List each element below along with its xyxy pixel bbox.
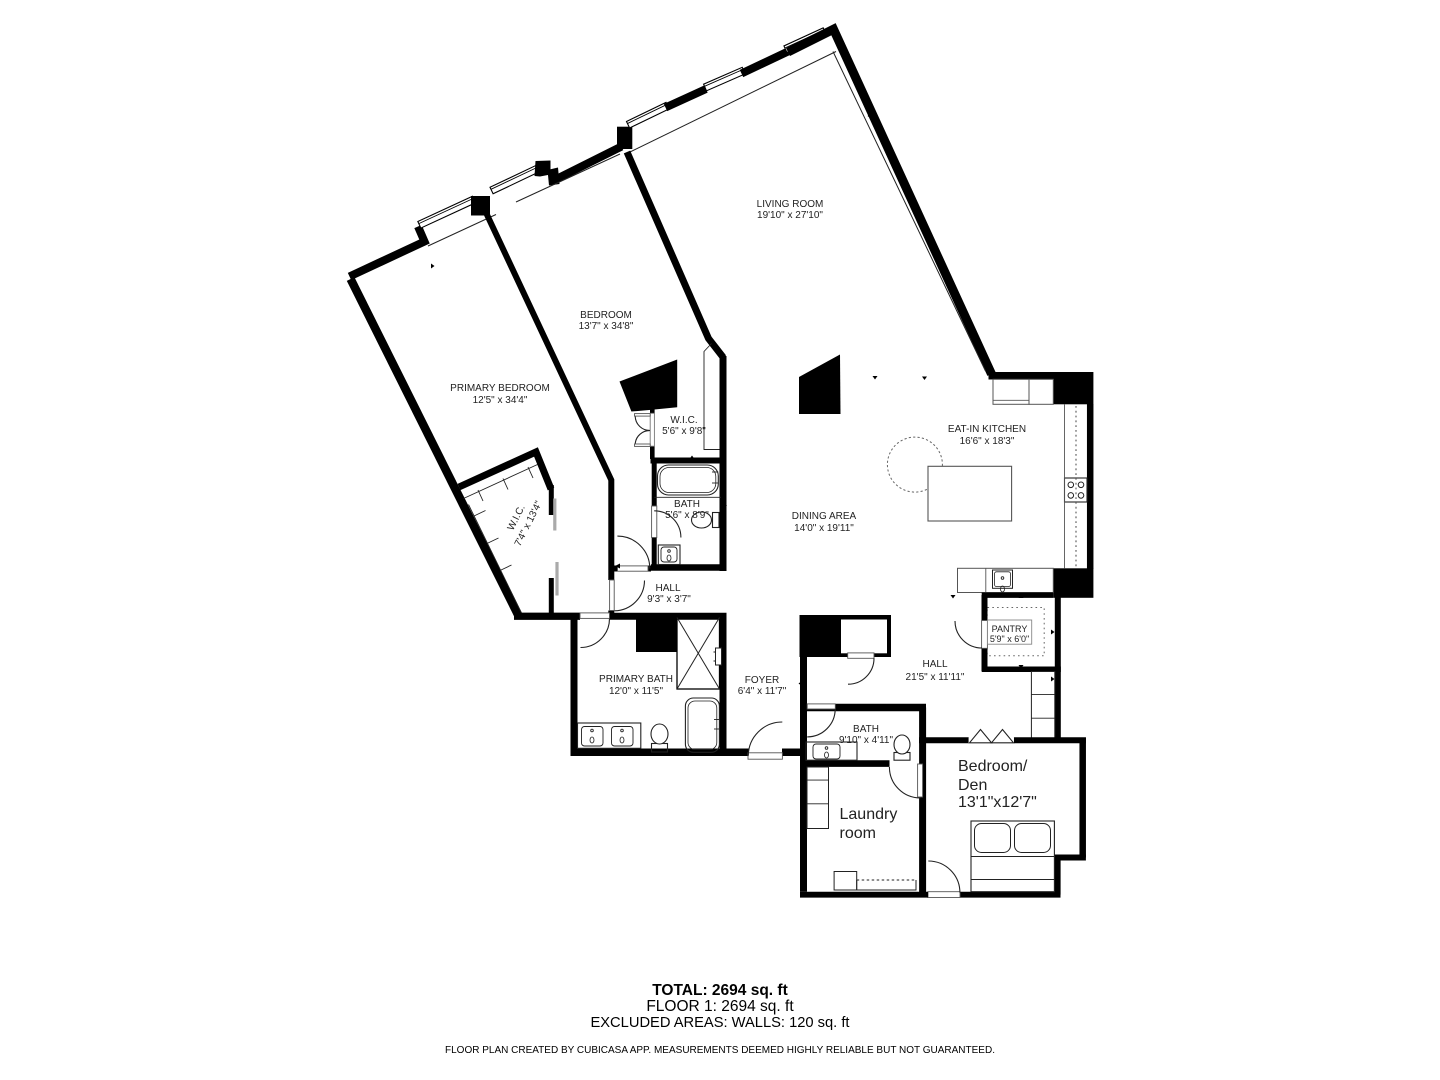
svg-text:LIVING ROOM: LIVING ROOM: [757, 199, 824, 210]
svg-text:HALL: HALL: [922, 659, 947, 670]
svg-text:FLOOR 1: 2694 sq. ft: FLOOR 1: 2694 sq. ft: [646, 998, 794, 1015]
svg-text:16'6" x 18'3": 16'6" x 18'3": [960, 436, 1015, 447]
svg-text:19'10" x 27'10": 19'10" x 27'10": [757, 210, 823, 221]
svg-text:9'10" x 4'11": 9'10" x 4'11": [839, 735, 894, 746]
svg-text:5'6" x 9'8": 5'6" x 9'8": [662, 426, 706, 437]
svg-text:12'5" x 34'4": 12'5" x 34'4": [473, 395, 528, 406]
svg-text:12'0" x 11'5": 12'0" x 11'5": [609, 686, 664, 697]
svg-text:EXCLUDED AREAS: WALLS: 120 sq.: EXCLUDED AREAS: WALLS: 120 sq. ft: [590, 1015, 849, 1031]
svg-text:PRIMARY BEDROOM: PRIMARY BEDROOM: [450, 383, 550, 394]
svg-text:BATH: BATH: [674, 499, 700, 510]
svg-text:PANTRY: PANTRY: [992, 624, 1028, 634]
svg-text:14'0" x 19'11": 14'0" x 19'11": [794, 523, 854, 534]
svg-text:HALL: HALL: [655, 583, 680, 594]
svg-text:DINING AREA: DINING AREA: [792, 511, 857, 522]
svg-text:PRIMARY BATH: PRIMARY BATH: [599, 674, 673, 685]
svg-text:FLOOR PLAN CREATED BY CUBICASA: FLOOR PLAN CREATED BY CUBICASA APP. MEAS…: [445, 1045, 995, 1056]
svg-text:9'3" x 3'7": 9'3" x 3'7": [647, 594, 691, 605]
svg-text:EAT-IN KITCHEN: EAT-IN KITCHEN: [948, 424, 1026, 435]
svg-text:21'5" x 11'11": 21'5" x 11'11": [906, 672, 965, 683]
svg-text:FOYER: FOYER: [745, 675, 779, 686]
svg-text:BEDROOM: BEDROOM: [580, 310, 632, 321]
svg-text:13'1"x12'7": 13'1"x12'7": [958, 794, 1037, 811]
svg-text:Bedroom/: Bedroom/: [958, 758, 1028, 775]
svg-text:6'4" x 11'7": 6'4" x 11'7": [738, 686, 787, 697]
svg-text:5'6" x 8'9": 5'6" x 8'9": [665, 510, 709, 521]
svg-text:Laundry: Laundry: [840, 806, 898, 823]
svg-text:TOTAL: 2694 sq. ft: TOTAL: 2694 sq. ft: [652, 982, 788, 999]
svg-text:W.I.C.: W.I.C.: [670, 415, 697, 426]
svg-text:5'9" x 6'0": 5'9" x 6'0": [990, 634, 1029, 644]
svg-text:Den: Den: [958, 777, 987, 794]
svg-text:BATH: BATH: [853, 724, 879, 735]
svg-text:room: room: [840, 825, 876, 842]
svg-text:13'7" x 34'8": 13'7" x 34'8": [579, 321, 634, 332]
